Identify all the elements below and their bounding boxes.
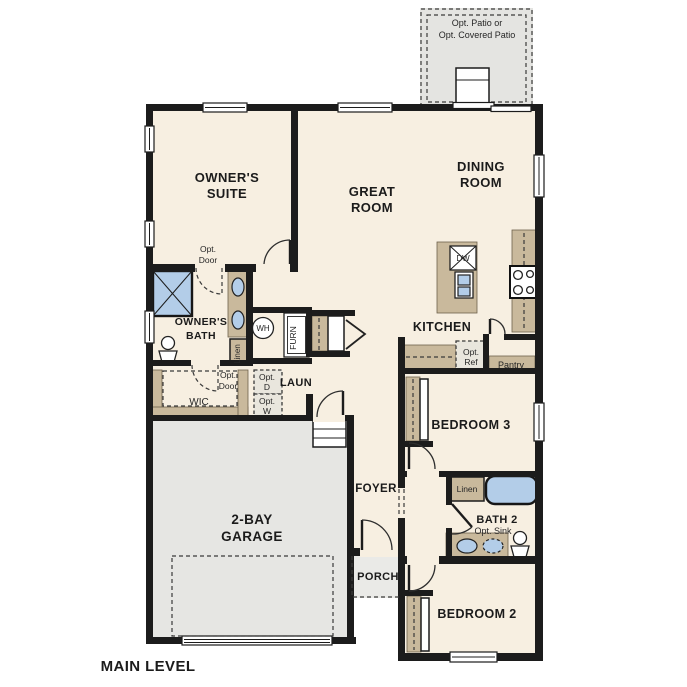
bedroom2-window — [450, 652, 497, 662]
owners-bath-window — [145, 311, 154, 343]
bedroom2-label: BEDROOM 2 — [437, 607, 516, 621]
opt-ref-label: Opt. — [463, 347, 479, 357]
bedroom2-closet-door — [421, 598, 429, 651]
garage-label: 2-BAY — [231, 512, 272, 527]
dining-room-label: ROOM — [460, 175, 502, 190]
floor-plan-page: OWNER'S SUITE GREAT ROOM DINING ROOM KIT… — [0, 0, 687, 687]
bedroom3-closet-door — [420, 379, 428, 440]
owners-suite-window-top — [203, 103, 247, 112]
dining-room-window — [534, 155, 544, 197]
wic-label: WIC — [189, 397, 208, 408]
opt-washer-label: W — [263, 406, 271, 416]
laundry-label: LAUN — [280, 377, 312, 389]
owners-suite-label: OWNER'S — [195, 170, 259, 185]
wic-shelf-right — [238, 370, 248, 417]
floor-plan-drawing: OWNER'S SUITE GREAT ROOM DINING ROOM KIT… — [0, 0, 687, 687]
coat-closet-shelf — [312, 316, 328, 351]
main-level-title: MAIN LEVEL — [101, 658, 196, 675]
owners-linen-label: Linen — [233, 344, 242, 364]
range-cooktop — [510, 266, 538, 298]
great-room-label: GREAT — [349, 184, 396, 199]
coat-closet-panel — [328, 316, 344, 351]
dishwasher-label: DW — [456, 254, 470, 263]
garage-steps — [313, 420, 346, 447]
opt-dryer-label: Opt. — [259, 372, 275, 382]
kitchen-sink — [455, 272, 473, 298]
foyer-label: FOYER — [355, 483, 397, 495]
owners-suite-window-left-2 — [145, 221, 154, 247]
opt-ref-label: Ref — [464, 357, 478, 367]
bath2-sink — [457, 539, 477, 553]
great-room-label: ROOM — [351, 200, 393, 215]
great-room-window-top — [338, 103, 392, 112]
pantry-label: Pantry — [498, 360, 525, 370]
opt-door-wic-label: Door — [219, 381, 238, 391]
bedroom3-window — [534, 403, 544, 441]
opt-door-wic-label: Opt. — [220, 370, 236, 380]
patio-label: Opt. Patio or — [452, 18, 503, 28]
bath2-optional-sink — [483, 539, 503, 553]
water-heater-label: WH — [256, 324, 270, 333]
garage-label: GARAGE — [221, 529, 283, 544]
owners-suite-window-left-1 — [145, 126, 154, 152]
furnace-label: FURN — [288, 326, 298, 350]
opt-dryer-label: D — [264, 382, 270, 392]
kitchen-label: KITCHEN — [413, 320, 471, 334]
opt-washer-label: Opt. — [259, 396, 275, 406]
owners-suite-label: SUITE — [207, 186, 247, 201]
bathtub — [486, 476, 537, 504]
patio-label: Opt. Covered Patio — [439, 30, 516, 40]
patio-landing — [456, 68, 489, 105]
hall-linen-label: Linen — [457, 484, 478, 494]
owners-bath-label: BATH — [186, 330, 216, 342]
owners-bath-label: OWNER'S — [175, 316, 228, 328]
bath2-label: BATH 2 — [476, 514, 517, 526]
opt-sink-label: Opt. Sink — [474, 526, 512, 536]
garage-door — [182, 636, 332, 645]
opt-door-suite-label: Door — [199, 255, 218, 265]
shower — [153, 271, 192, 316]
owners-sink-1 — [232, 278, 244, 296]
bedroom3-label: BEDROOM 3 — [431, 418, 510, 432]
owners-sink-2 — [232, 311, 244, 329]
opt-door-suite-label: Opt. — [200, 244, 216, 254]
dining-room-label: DINING — [457, 159, 505, 174]
porch-label: PORCH — [357, 571, 399, 583]
